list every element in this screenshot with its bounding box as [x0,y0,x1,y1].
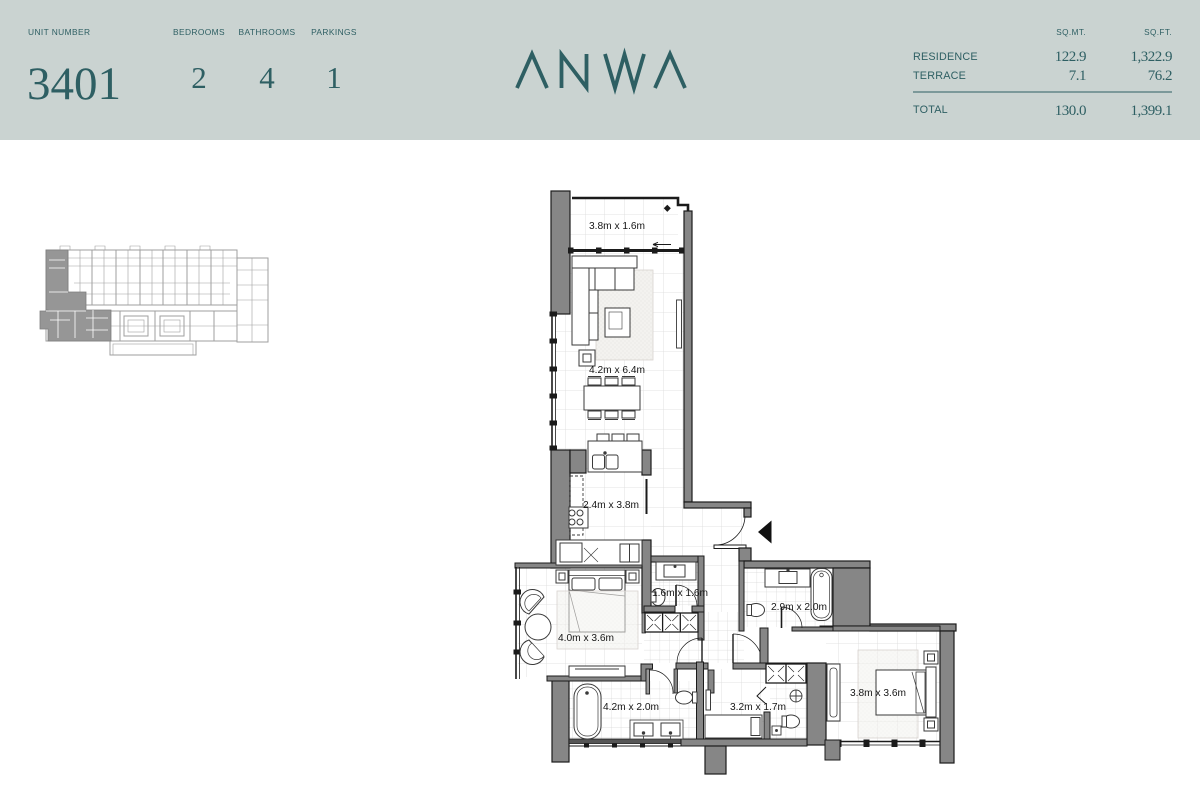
svg-text:TERRACE: TERRACE [913,70,966,82]
svg-text:76.2: 76.2 [1148,68,1172,84]
svg-text:SQ.MT.: SQ.MT. [1056,28,1086,37]
svg-text:1,399.1: 1,399.1 [1131,103,1173,119]
svg-text:1,322.9: 1,322.9 [1131,49,1173,65]
svg-text:4.2m x 2.0m: 4.2m x 2.0m [603,702,659,713]
svg-text:4.0m x 3.6m: 4.0m x 3.6m [558,633,614,644]
svg-text:7.1: 7.1 [1069,68,1086,84]
svg-text:BATHROOMS: BATHROOMS [239,27,296,37]
svg-text:1.6m x 1.6m: 1.6m x 1.6m [652,588,708,599]
svg-text:3.2m x 1.7m: 3.2m x 1.7m [730,702,786,713]
svg-text:TOTAL: TOTAL [913,104,948,116]
svg-text:UNIT NUMBER: UNIT NUMBER [28,27,90,37]
svg-text:130.0: 130.0 [1055,103,1086,119]
svg-text:4.2m x 6.4m: 4.2m x 6.4m [589,365,645,376]
svg-text:SQ.FT.: SQ.FT. [1144,28,1172,37]
svg-text:3.8m x 3.6m: 3.8m x 3.6m [850,688,906,699]
svg-text:3.8m x 1.6m: 3.8m x 1.6m [589,221,645,232]
svg-text:4: 4 [259,60,275,95]
svg-text:122.9: 122.9 [1055,49,1086,65]
svg-text:3401: 3401 [27,58,121,110]
svg-text:2.4m x 3.8m: 2.4m x 3.8m [583,500,639,511]
svg-text:2.9m x 2.0m: 2.9m x 2.0m [771,602,827,613]
svg-text:BEDROOMS: BEDROOMS [173,27,225,37]
svg-text:RESIDENCE: RESIDENCE [913,51,978,63]
svg-text:PARKINGS: PARKINGS [311,27,357,37]
svg-text:2: 2 [191,60,207,95]
svg-text:1: 1 [326,60,342,95]
